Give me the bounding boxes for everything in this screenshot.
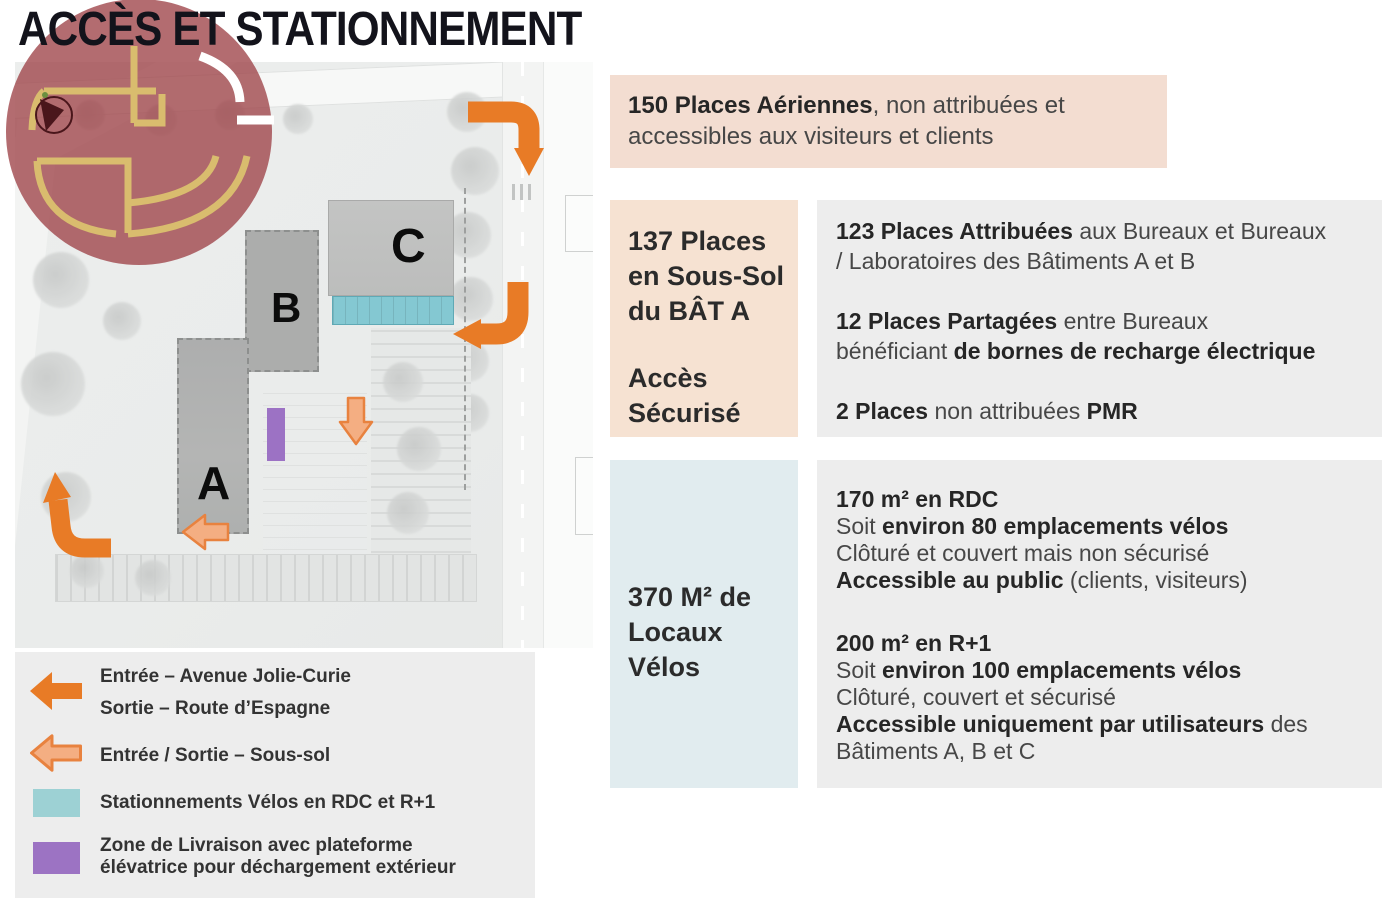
text-line: Clôturé et couvert mais non sécurisé (836, 540, 1364, 567)
text-line: Vélos (628, 650, 788, 685)
text-line: Soit environ 100 emplacements vélos (836, 657, 1364, 684)
text-line: 150 Places Aériennes, non attribuées et (628, 90, 1151, 121)
underground-places-box: 137 Placesen Sous-Soldu BÂT A AccèsSécur… (610, 200, 798, 437)
text-line: en Sous-Sol (628, 259, 788, 294)
teal-swatch-icon (33, 789, 80, 817)
pmr-places-text: 2 Places non attribuées PMR (836, 396, 1364, 426)
text-line: 370 M² de (628, 580, 788, 615)
aerial-places-box: 150 Places Aériennes, non attribuées eta… (610, 75, 1167, 168)
bike-rooms-box: 370 M² deLocauxVélos (610, 460, 798, 788)
text-line: 123 Places Attribuées aux Bureaux et Bur… (836, 216, 1364, 246)
bike-rooms-details-box: 170 m² en RDCSoit environ 80 emplacement… (817, 460, 1382, 788)
aerial-places-text: 150 Places Aériennes, non attribuées eta… (610, 75, 1167, 152)
legend-delivery-zone-label: Zone de Livraison avec plateformeélévatr… (100, 835, 456, 879)
bike-room-rdc-text: 170 m² en RDCSoit environ 80 emplacement… (836, 486, 1364, 594)
basement-arrow-down-icon (340, 398, 372, 444)
text-line: Clôturé, couvert et sécurisé (836, 684, 1364, 711)
text-line: du BÂT A (628, 294, 788, 329)
text-line: 137 Places (628, 224, 788, 259)
underground-places-title: 137 Placesen Sous-Soldu BÂT A (628, 224, 788, 329)
page-title: ACCÈS ET STATIONNEMENT (18, 2, 581, 57)
text-line: Accès (628, 361, 788, 396)
text-line: Stationnements Vélos en RDC et R+1 (100, 792, 435, 814)
text-line: 200 m² en R+1 (836, 630, 1364, 657)
text-line: Entrée / Sortie – Sous-sol (100, 745, 330, 767)
text-line: 12 Places Partagées entre Bureaux (836, 306, 1364, 336)
text-line: 170 m² en RDC (836, 486, 1364, 513)
underground-places-details-box: 123 Places Attribuées aux Bureaux et Bur… (817, 200, 1382, 437)
entry-exit-arrow-outline-icon (30, 734, 82, 772)
bike-room-r1-text: 200 m² en R+1Soit environ 100 emplacemen… (836, 630, 1364, 765)
legend-entry-exit-label: Entrée – Avenue Jolie-CurieSortie – Rout… (100, 666, 351, 720)
text-line: Accessible uniquement par utilisateurs d… (836, 711, 1364, 738)
map-legend: Entrée – Avenue Jolie-CurieSortie – Rout… (15, 652, 535, 898)
purple-swatch-icon (33, 842, 80, 874)
bike-rooms-title: 370 M² deLocauxVélos (610, 460, 798, 685)
text-line: Zone de Livraison avec plateforme (100, 835, 456, 857)
text-line: Soit environ 80 emplacements vélos (836, 513, 1364, 540)
entry-arrow-right-icon (453, 282, 518, 349)
text-line: Accessible au public (clients, visiteurs… (836, 567, 1364, 594)
text-line: Locaux (628, 615, 788, 650)
shared-places-text: 12 Places Partagées entre Bureauxbénéfic… (836, 306, 1364, 366)
legend-bike-parking-label: Stationnements Vélos en RDC et R+1 (100, 792, 435, 814)
entry-arrow-solid-icon (30, 672, 82, 710)
secured-access-label: AccèsSécurisé (628, 361, 788, 431)
entry-arrow-top-icon (468, 112, 544, 176)
text-line: / Laboratoires des Bâtiments A et B (836, 246, 1364, 276)
text-line: 2 Places non attribuées PMR (836, 396, 1364, 426)
exit-arrow-bottomleft-icon (43, 472, 111, 548)
text-line: accessibles aux visiteurs et clients (628, 121, 1151, 152)
text-line: Entrée – Avenue Jolie-Curie (100, 666, 351, 688)
text-line: élévatrice pour déchargement extérieur (100, 857, 456, 879)
attributed-places-text: 123 Places Attribuées aux Bureaux et Bur… (836, 216, 1364, 276)
text-line: Sécurisé (628, 396, 788, 431)
text-line: bénéficiant de bornes de recharge électr… (836, 336, 1364, 366)
legend-basement-label: Entrée / Sortie – Sous-sol (100, 745, 330, 767)
basement-arrow-left-icon (183, 515, 228, 549)
page: ACCÈS ET STATIONNEMENT (0, 0, 1400, 913)
text-line: Sortie – Route d’Espagne (100, 698, 351, 720)
text-line: Bâtiments A, B et C (836, 738, 1364, 765)
